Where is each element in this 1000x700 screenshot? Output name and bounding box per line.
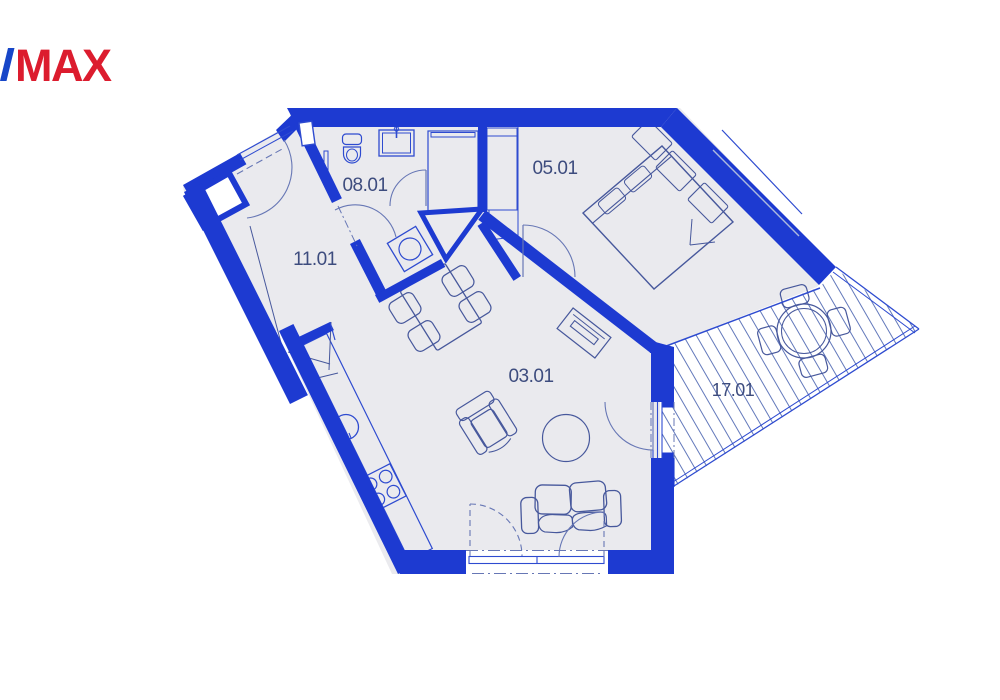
svg-text:08.01: 08.01 (342, 175, 387, 196)
svg-text:11.01: 11.01 (293, 249, 337, 270)
svg-text:MAX: MAX (15, 40, 112, 91)
svg-text:17.01: 17.01 (712, 380, 755, 400)
svg-text:05.01: 05.01 (532, 158, 577, 179)
svg-text:03.01: 03.01 (508, 366, 553, 387)
